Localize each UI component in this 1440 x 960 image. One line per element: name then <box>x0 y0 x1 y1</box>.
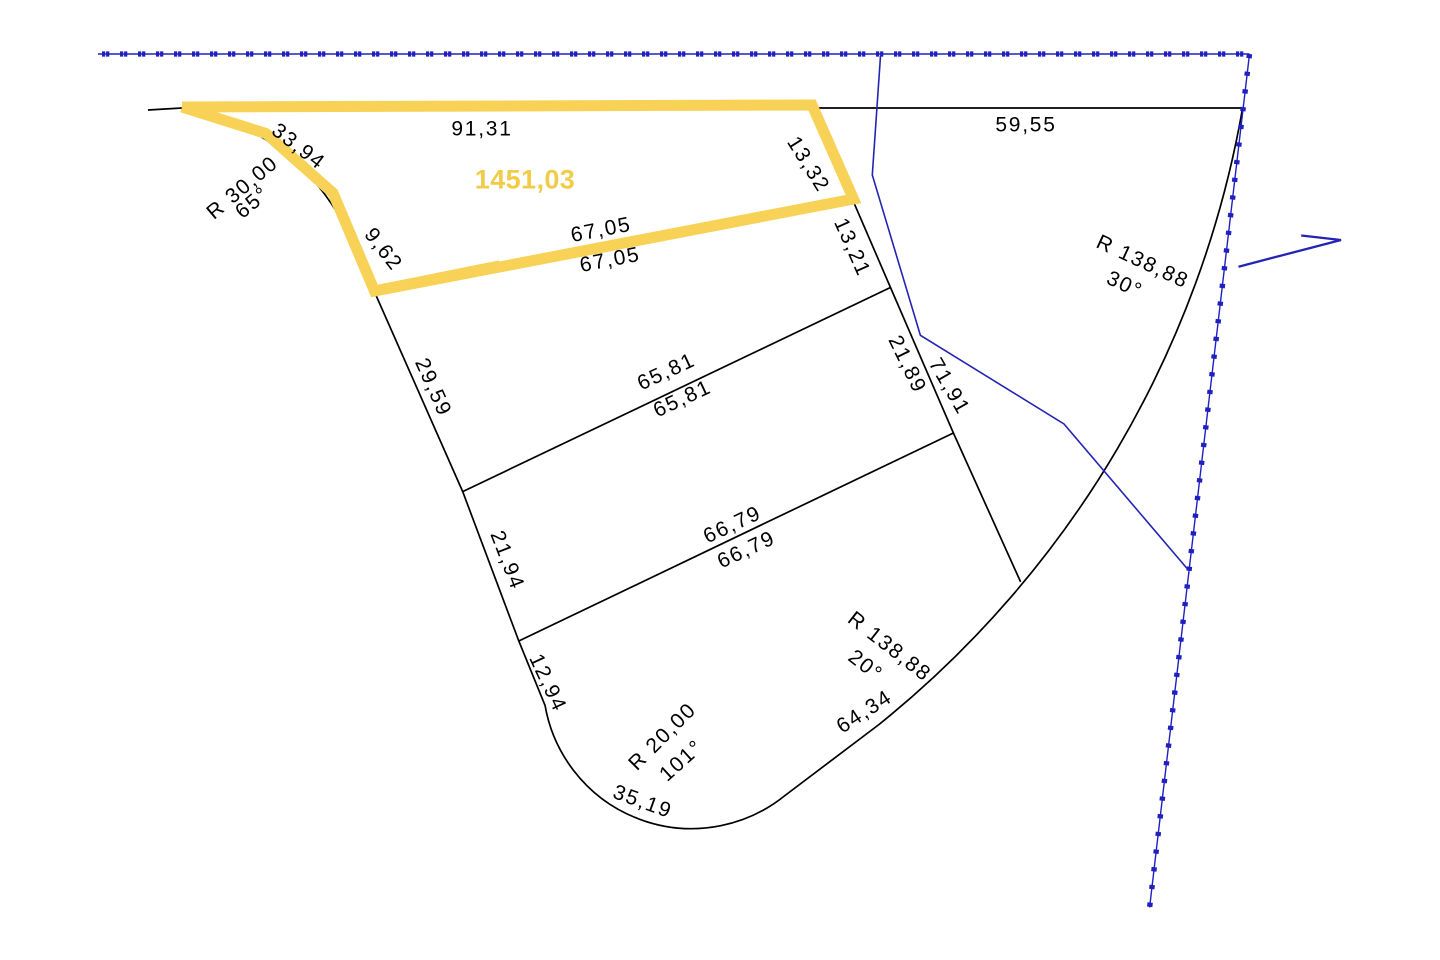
svg-text:1451,03: 1451,03 <box>475 164 575 194</box>
svg-text:59,55: 59,55 <box>995 113 1056 136</box>
svg-text:91,31: 91,31 <box>451 117 512 140</box>
